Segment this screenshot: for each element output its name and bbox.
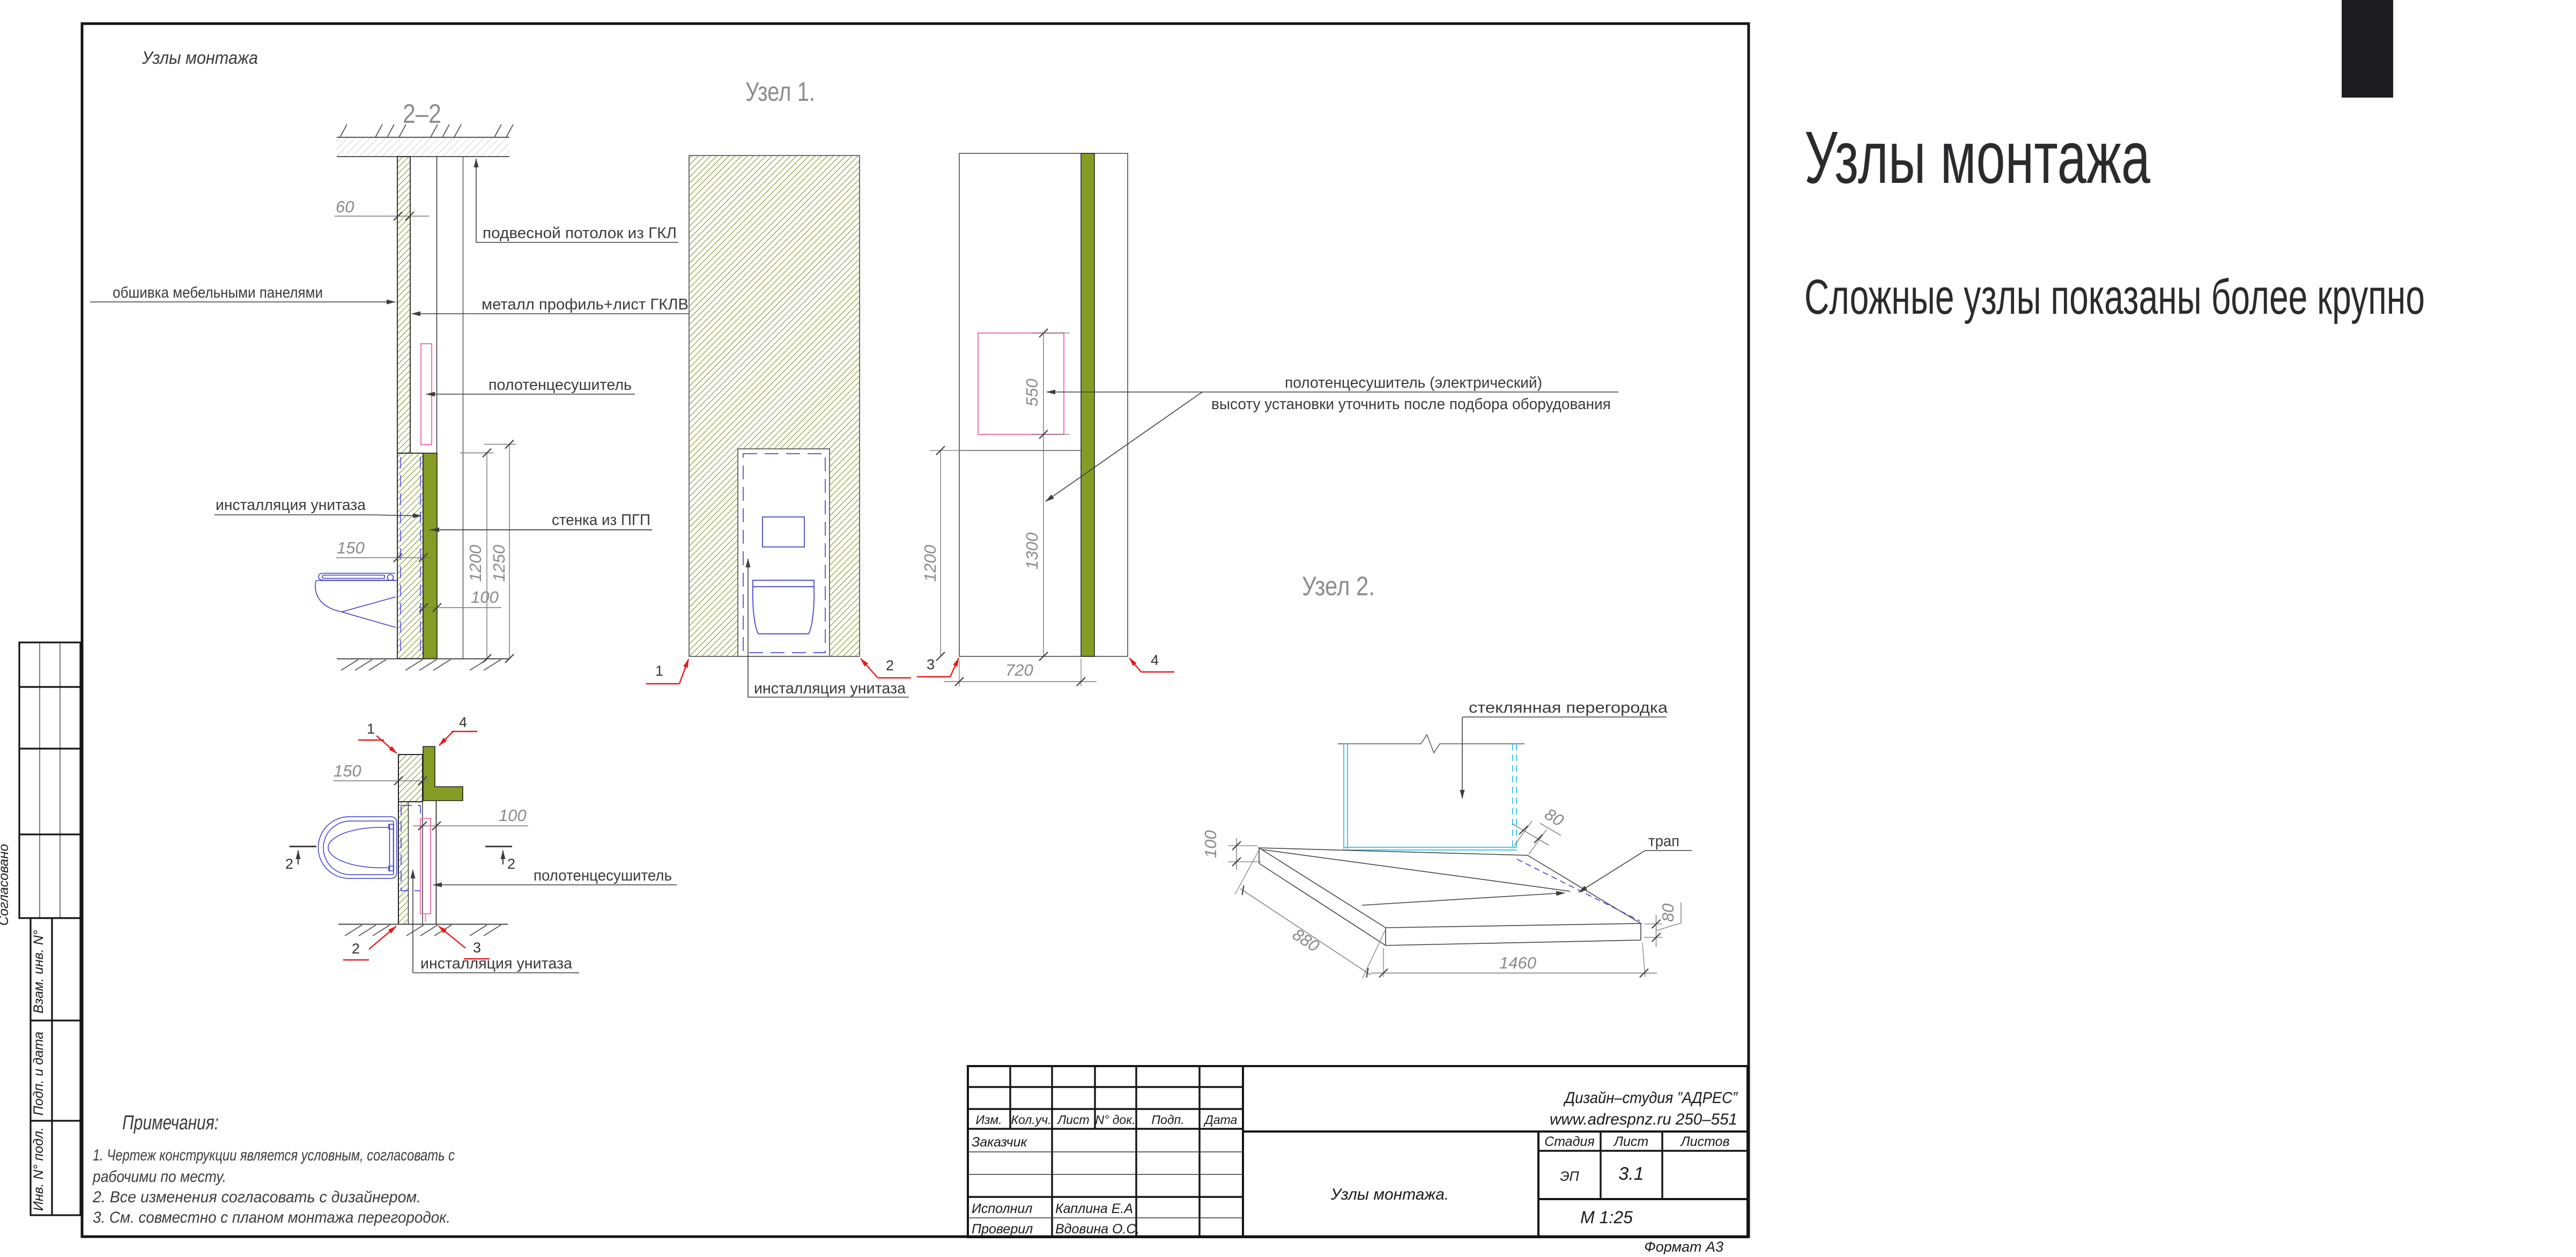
svg-text:Лист: Лист <box>1613 1134 1648 1149</box>
svg-text:100: 100 <box>1201 830 1220 858</box>
svg-text:3: 3 <box>473 940 481 956</box>
svg-text:Подп. и дата: Подп. и дата <box>31 1032 46 1116</box>
svg-text:2: 2 <box>507 856 515 872</box>
svg-text:Взам. инв. N°: Взам. инв. N° <box>31 930 46 1014</box>
svg-text:2: 2 <box>285 856 293 872</box>
svg-text:3.1: 3.1 <box>1618 1164 1644 1184</box>
svg-text:Дизайн–студия ”АДРЕС”: Дизайн–студия ”АДРЕС” <box>1563 1089 1738 1107</box>
svg-text:Проверил: Проверил <box>972 1222 1033 1237</box>
svg-text:2: 2 <box>886 657 894 674</box>
svg-text:Исполнил: Исполнил <box>972 1201 1032 1216</box>
svg-text:1: 1 <box>655 663 663 679</box>
svg-text:ЭП: ЭП <box>1560 1169 1579 1184</box>
svg-text:Лист: Лист <box>1056 1113 1089 1127</box>
svg-text:Дата: Дата <box>1203 1113 1238 1127</box>
svg-text:150: 150 <box>334 761 361 780</box>
svg-text:Узлы монтажа.: Узлы монтажа. <box>1330 1186 1449 1203</box>
svg-text:1200: 1200 <box>921 545 939 582</box>
svg-text:Стадия: Стадия <box>1544 1134 1595 1149</box>
svg-text:Листов: Листов <box>1679 1134 1729 1149</box>
svg-text:150: 150 <box>337 538 365 557</box>
svg-text:100: 100 <box>499 806 527 825</box>
svg-text:1300: 1300 <box>1023 533 1041 570</box>
svg-text:обшивка мебельными панелями: обшивка мебельными панелями <box>113 284 323 301</box>
svg-text:Формат А3: Формат А3 <box>1644 1239 1723 1254</box>
svg-text:1: 1 <box>367 721 375 737</box>
svg-text:полотенцесушитель: полотенцесушитель <box>534 867 672 884</box>
svg-text:100: 100 <box>471 588 499 607</box>
svg-text:80: 80 <box>1659 904 1677 922</box>
svg-text:Заказчик: Заказчик <box>972 1135 1027 1150</box>
svg-text:1200: 1200 <box>466 545 485 582</box>
svg-text:550: 550 <box>1023 379 1041 406</box>
svg-text:Примечания:: Примечания: <box>122 1112 219 1134</box>
svg-text:1. Чертеж конструкции являе: 1. Чертеж конструкции является условным,… <box>93 1147 455 1164</box>
svg-text:металл профиль+лист ГКЛВ: металл профиль+лист ГКЛВ <box>482 296 689 313</box>
svg-text:Изм.: Изм. <box>975 1113 1002 1127</box>
svg-text:полотенцесушитель (электрическ: полотенцесушитель (электрический) <box>1285 374 1542 391</box>
svg-text:М 1:25: М 1:25 <box>1580 1208 1633 1227</box>
svg-text:3: 3 <box>927 656 935 672</box>
svg-text:2: 2 <box>352 941 360 957</box>
svg-text:инсталляция унитаза: инсталляция унитаза <box>216 497 366 514</box>
svg-text:Узлы монтажа: Узлы монтажа <box>1804 116 2150 199</box>
svg-text:720: 720 <box>1005 661 1033 679</box>
svg-text:Узлы монтажа: Узлы монтажа <box>142 48 258 68</box>
svg-text:Каплина Е.А: Каплина Е.А <box>1055 1201 1133 1216</box>
svg-text:60: 60 <box>336 197 354 216</box>
svg-text:Согласовано: Согласовано <box>0 844 11 926</box>
svg-text:1250: 1250 <box>490 545 508 582</box>
svg-text:2–2: 2–2 <box>403 99 441 129</box>
svg-text:2. Все изменения согласоват: 2. Все изменения согласовать с дизайнеро… <box>92 1188 421 1206</box>
svg-text:Инв. N° подл.: Инв. N° подл. <box>31 1127 46 1211</box>
svg-text:инсталляция унитаза: инсталляция унитаза <box>754 680 906 697</box>
svg-text:стеклянная перегородка: стеклянная перегородка <box>1469 699 1668 716</box>
svg-text:Вдовина О.С.: Вдовина О.С. <box>1055 1222 1139 1237</box>
svg-text:Узел 2.: Узел 2. <box>1302 571 1375 601</box>
svg-text:Сложные узлы показаны более кр: Сложные узлы показаны более крупно <box>1804 270 2425 324</box>
svg-text:трап: трап <box>1648 833 1679 850</box>
svg-text:1460: 1460 <box>1499 953 1536 972</box>
svg-text:N° док.: N° док. <box>1095 1113 1136 1127</box>
svg-text:www.adrespnz.ru 250–551: www.adrespnz.ru 250–551 <box>1550 1111 1737 1128</box>
svg-text:инсталляция унитаза: инсталляция унитаза <box>420 955 573 972</box>
svg-text:полотенцесушитель: полотенцесушитель <box>488 376 632 394</box>
svg-text:подвесной потолок из ГКЛ: подвесной потолок из ГКЛ <box>483 225 677 242</box>
svg-text:3. См. совместно с планом: 3. См. совместно с планом монтажа перего… <box>93 1209 450 1226</box>
svg-text:Подп.: Подп. <box>1151 1113 1184 1127</box>
svg-text:высоту установки уточнить посл: высоту установки уточнить после подбора … <box>1211 396 1611 413</box>
svg-text:рабочими по месту.: рабочими по месту. <box>92 1168 226 1186</box>
svg-text:стенка из ПГП: стенка из ПГП <box>552 512 650 529</box>
svg-text:Узел 1.: Узел 1. <box>745 77 815 107</box>
svg-text:4: 4 <box>1151 652 1159 668</box>
svg-text:4: 4 <box>459 714 467 730</box>
svg-text:Кол.уч.: Кол.уч. <box>1011 1113 1052 1127</box>
